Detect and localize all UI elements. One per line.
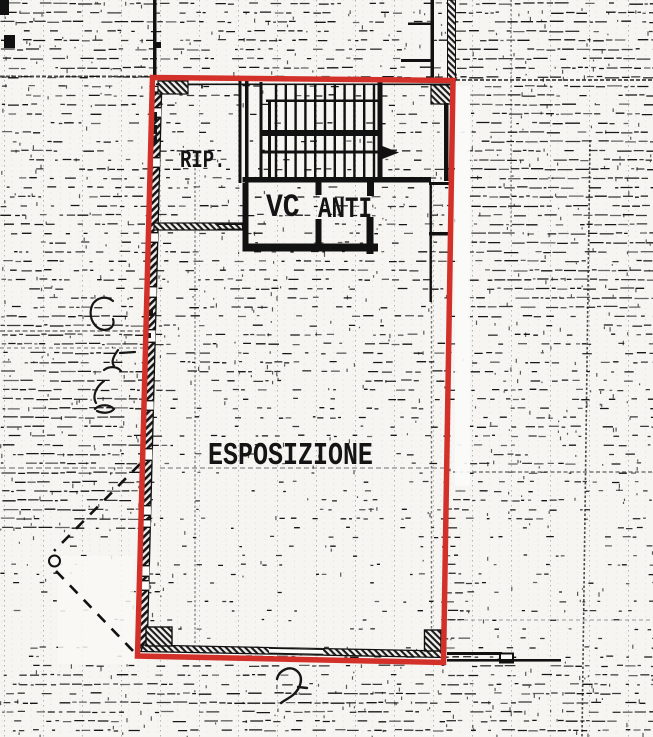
svg-text:ANTI: ANTI [318, 192, 372, 226]
svg-text:RIP.: RIP. [180, 147, 226, 175]
svg-text:VC: VC [266, 190, 300, 226]
svg-text:ESPOSIZIONE: ESPOSIZIONE [208, 439, 373, 474]
